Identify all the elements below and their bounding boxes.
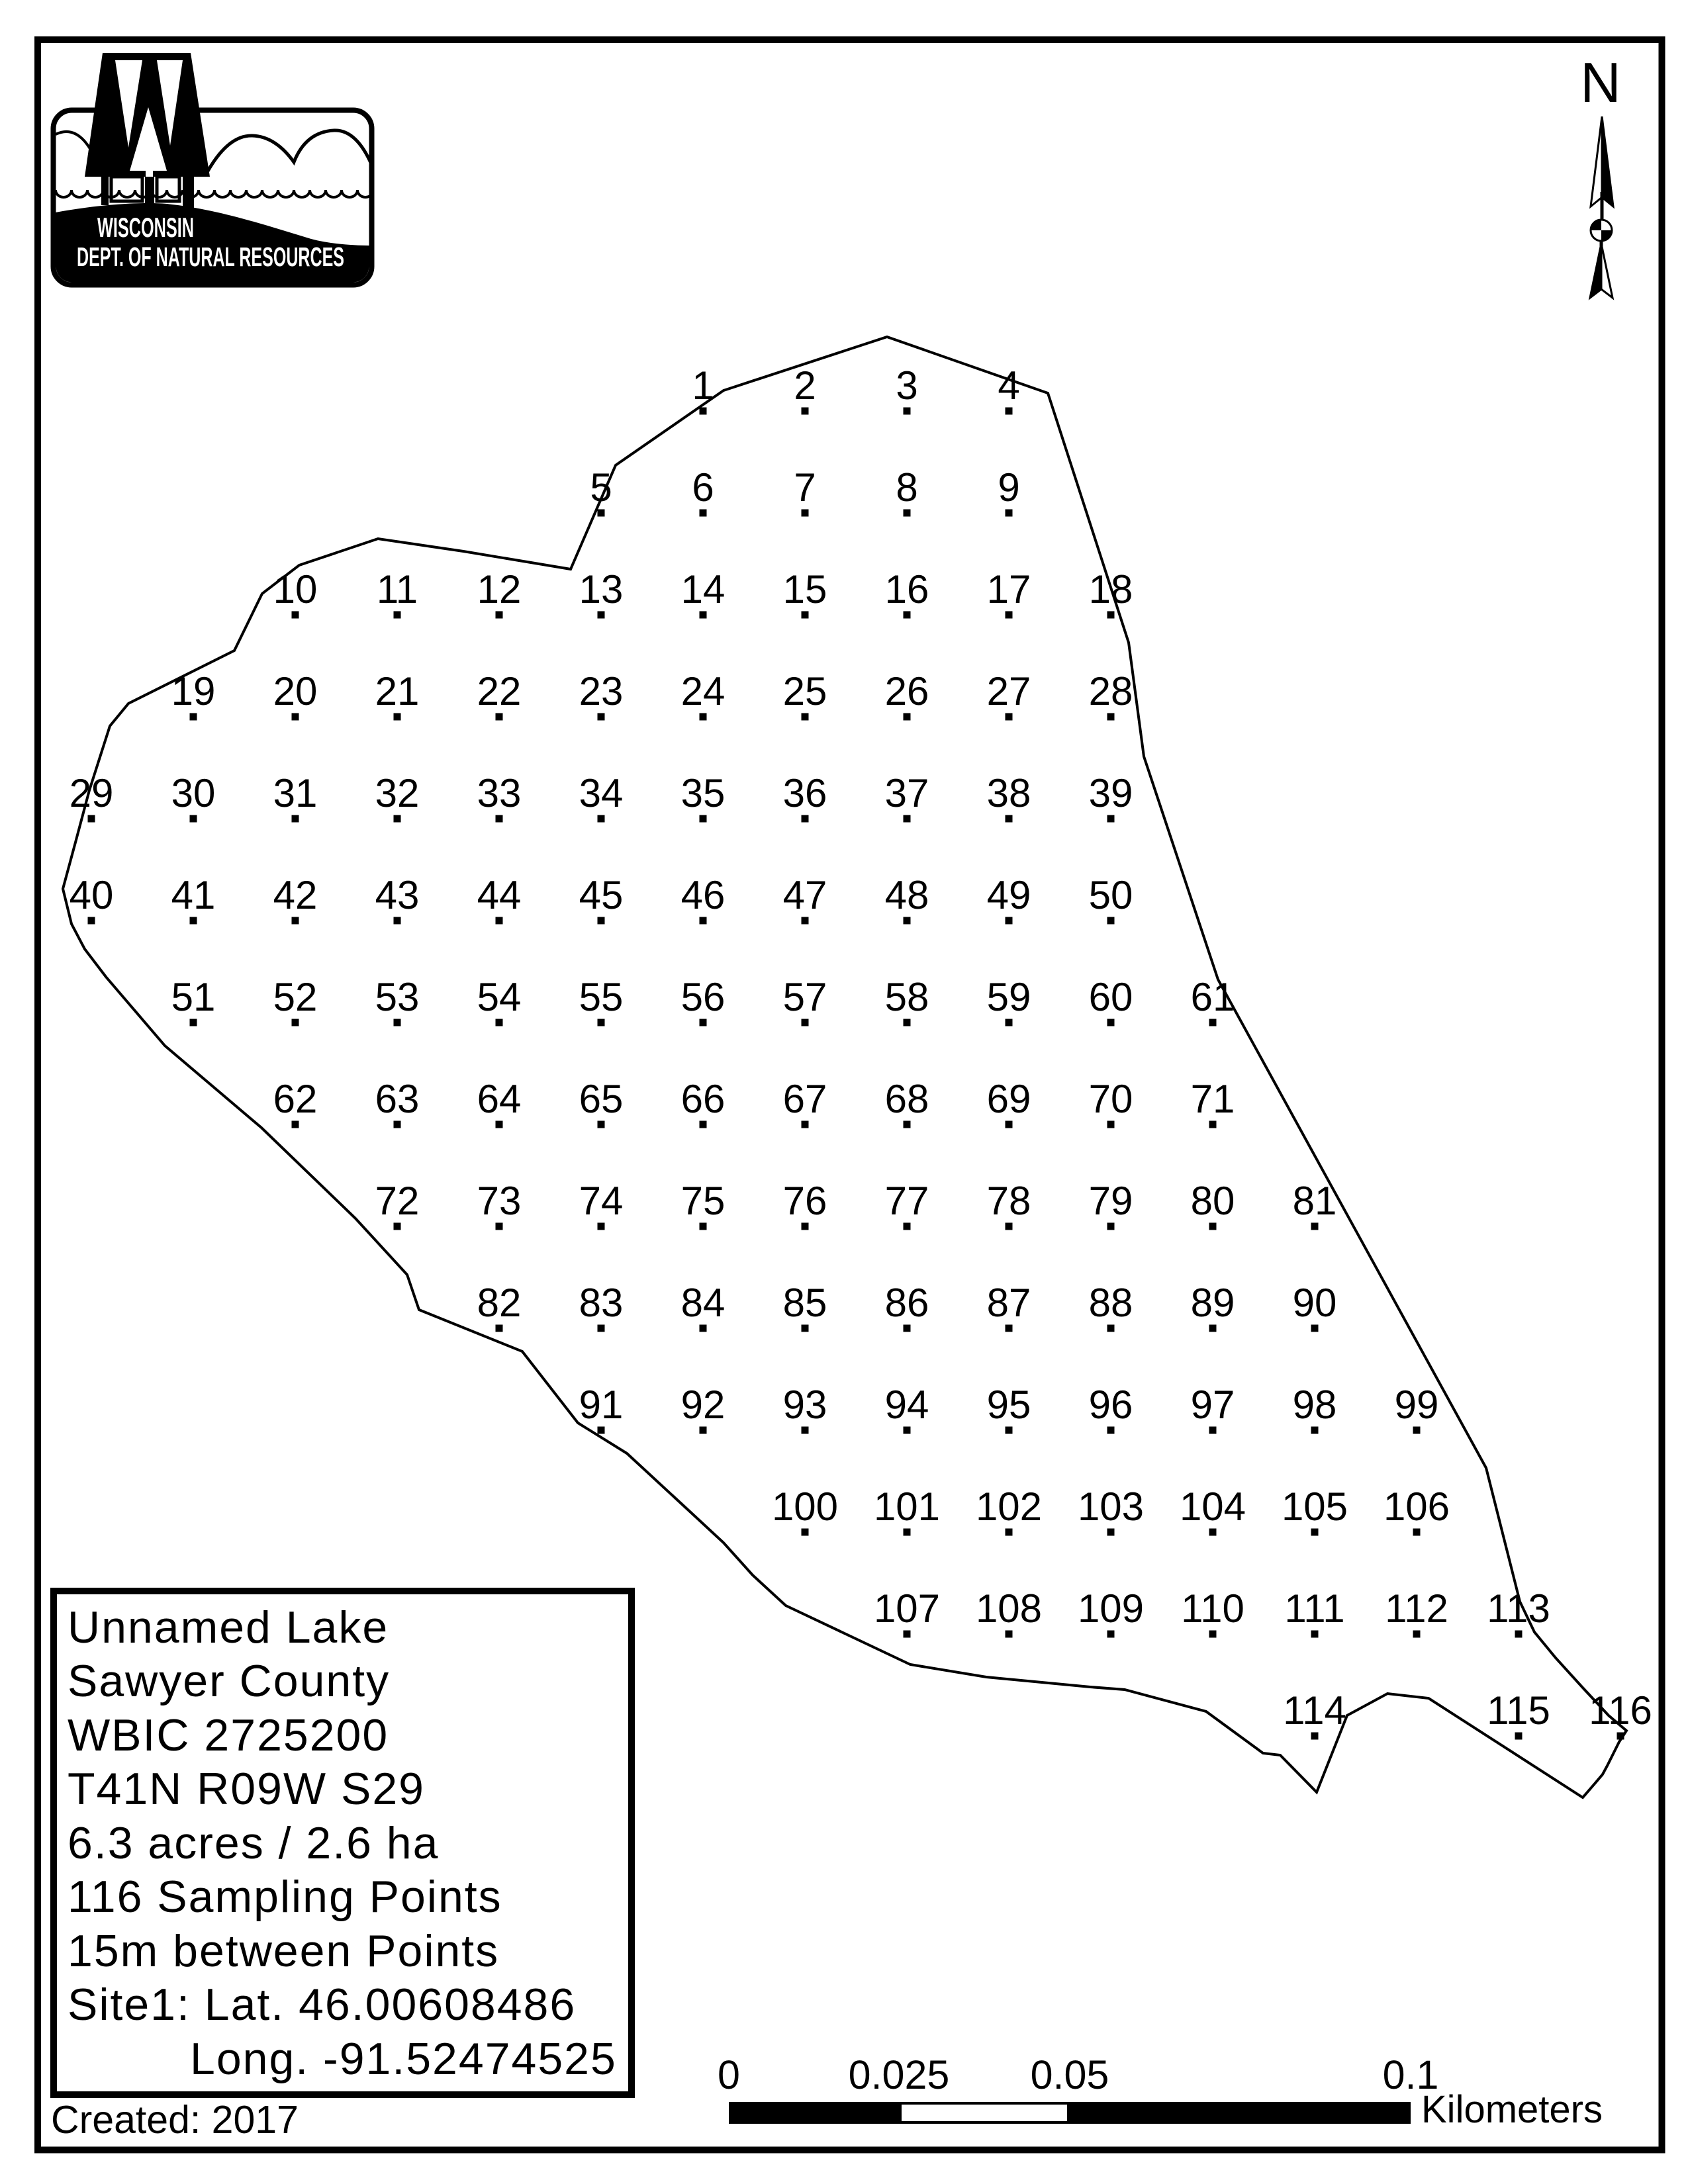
svg-text:65: 65 xyxy=(579,1077,624,1121)
svg-text:114: 114 xyxy=(1283,1688,1346,1733)
svg-text:92: 92 xyxy=(681,1383,726,1427)
svg-text:40: 40 xyxy=(70,873,114,917)
svg-text:83: 83 xyxy=(579,1281,624,1325)
svg-text:Unnamed Lake: Unnamed Lake xyxy=(68,1602,389,1653)
svg-text:94: 94 xyxy=(885,1383,929,1427)
svg-text:54: 54 xyxy=(477,975,522,1019)
svg-text:51: 51 xyxy=(171,975,216,1019)
svg-text:43: 43 xyxy=(375,873,420,917)
svg-text:15m between Points: 15m between Points xyxy=(68,1926,499,1976)
svg-text:101: 101 xyxy=(874,1484,940,1529)
svg-text:19: 19 xyxy=(171,669,216,713)
svg-text:82: 82 xyxy=(477,1281,522,1325)
svg-text:61: 61 xyxy=(1191,975,1235,1019)
svg-text:14: 14 xyxy=(681,567,726,612)
svg-text:27: 27 xyxy=(987,669,1031,713)
svg-text:33: 33 xyxy=(477,771,522,815)
svg-text:46: 46 xyxy=(681,873,726,917)
svg-text:7: 7 xyxy=(794,465,816,510)
svg-text:30: 30 xyxy=(171,771,216,815)
svg-text:Created: 2017: Created: 2017 xyxy=(51,2098,299,2142)
svg-text:39: 39 xyxy=(1089,771,1133,815)
svg-text:22: 22 xyxy=(477,669,522,713)
svg-text:75: 75 xyxy=(681,1179,726,1223)
svg-text:89: 89 xyxy=(1191,1281,1235,1325)
svg-text:71: 71 xyxy=(1191,1077,1235,1121)
svg-text:0.025: 0.025 xyxy=(849,2052,950,2097)
svg-text:78: 78 xyxy=(987,1179,1031,1223)
svg-text:67: 67 xyxy=(783,1077,827,1121)
svg-text:52: 52 xyxy=(273,975,318,1019)
svg-text:16: 16 xyxy=(885,567,929,612)
svg-text:4: 4 xyxy=(998,363,1019,408)
svg-text:N: N xyxy=(1580,52,1620,114)
svg-text:9: 9 xyxy=(998,465,1019,510)
svg-text:50: 50 xyxy=(1089,873,1133,917)
svg-text:106: 106 xyxy=(1383,1484,1450,1529)
svg-text:3: 3 xyxy=(896,363,917,408)
svg-text:34: 34 xyxy=(579,771,624,815)
svg-text:0: 0 xyxy=(718,2052,740,2097)
svg-text:112: 112 xyxy=(1385,1586,1448,1631)
svg-text:41: 41 xyxy=(171,873,216,917)
svg-text:DEPT. OF NATURAL RESOURCES: DEPT. OF NATURAL RESOURCES xyxy=(77,242,344,272)
svg-text:104: 104 xyxy=(1180,1484,1246,1529)
svg-text:12: 12 xyxy=(477,567,522,612)
svg-text:79: 79 xyxy=(1089,1179,1133,1223)
svg-text:62: 62 xyxy=(273,1077,318,1121)
svg-text:42: 42 xyxy=(273,873,318,917)
svg-text:0.05: 0.05 xyxy=(1031,2052,1109,2097)
svg-text:57: 57 xyxy=(783,975,827,1019)
svg-text:74: 74 xyxy=(579,1179,624,1223)
svg-text:T41N R09W S29: T41N R09W S29 xyxy=(68,1764,425,1814)
svg-text:Long. -91.52474525: Long. -91.52474525 xyxy=(190,2034,617,2084)
svg-text:26: 26 xyxy=(885,669,929,713)
svg-text:56: 56 xyxy=(681,975,726,1019)
svg-text:84: 84 xyxy=(681,1281,726,1325)
svg-text:37: 37 xyxy=(885,771,929,815)
svg-text:63: 63 xyxy=(375,1077,420,1121)
svg-text:2: 2 xyxy=(794,363,816,408)
svg-text:44: 44 xyxy=(477,873,522,917)
svg-text:Kilometers: Kilometers xyxy=(1421,2088,1603,2131)
svg-text:35: 35 xyxy=(681,771,726,815)
svg-text:87: 87 xyxy=(987,1281,1031,1325)
svg-text:105: 105 xyxy=(1282,1484,1348,1529)
svg-text:24: 24 xyxy=(681,669,726,713)
svg-text:Site1: Lat. 46.00608486: Site1: Lat. 46.00608486 xyxy=(68,1979,576,2030)
svg-text:100: 100 xyxy=(772,1484,838,1529)
svg-text:88: 88 xyxy=(1089,1281,1133,1325)
svg-text:66: 66 xyxy=(681,1077,726,1121)
svg-text:1: 1 xyxy=(692,363,714,408)
svg-text:6: 6 xyxy=(692,465,714,510)
svg-text:69: 69 xyxy=(987,1077,1031,1121)
svg-text:72: 72 xyxy=(375,1179,420,1223)
svg-text:48: 48 xyxy=(885,873,929,917)
svg-text:18: 18 xyxy=(1089,567,1133,612)
svg-text:36: 36 xyxy=(783,771,827,815)
svg-text:98: 98 xyxy=(1293,1383,1337,1427)
svg-text:103: 103 xyxy=(1078,1484,1144,1529)
svg-text:47: 47 xyxy=(783,873,827,917)
svg-text:WBIC 2725200: WBIC 2725200 xyxy=(68,1710,389,1760)
svg-text:28: 28 xyxy=(1089,669,1133,713)
svg-text:70: 70 xyxy=(1089,1077,1133,1121)
svg-text:108: 108 xyxy=(976,1586,1042,1631)
svg-text:73: 73 xyxy=(477,1179,522,1223)
svg-text:59: 59 xyxy=(987,975,1031,1019)
svg-text:45: 45 xyxy=(579,873,624,917)
svg-text:60: 60 xyxy=(1089,975,1133,1019)
svg-text:90: 90 xyxy=(1293,1281,1337,1325)
svg-text:97: 97 xyxy=(1191,1383,1235,1427)
svg-text:49: 49 xyxy=(987,873,1031,917)
svg-text:115: 115 xyxy=(1487,1688,1550,1733)
svg-text:113: 113 xyxy=(1487,1586,1550,1631)
svg-text:93: 93 xyxy=(783,1383,827,1427)
svg-text:Sawyer County: Sawyer County xyxy=(68,1656,390,1706)
svg-text:11: 11 xyxy=(377,567,418,612)
svg-text:38: 38 xyxy=(987,771,1031,815)
svg-text:5: 5 xyxy=(590,465,612,510)
svg-text:111: 111 xyxy=(1284,1586,1344,1631)
svg-text:64: 64 xyxy=(477,1077,522,1121)
svg-text:13: 13 xyxy=(579,567,624,612)
svg-text:116: 116 xyxy=(1589,1688,1652,1733)
svg-text:10: 10 xyxy=(273,567,318,612)
svg-text:29: 29 xyxy=(70,771,114,815)
svg-text:WISCONSIN: WISCONSIN xyxy=(97,212,194,243)
svg-text:32: 32 xyxy=(375,771,420,815)
svg-text:17: 17 xyxy=(987,567,1031,612)
svg-text:21: 21 xyxy=(375,669,420,713)
svg-text:107: 107 xyxy=(874,1586,940,1631)
svg-text:110: 110 xyxy=(1181,1586,1244,1631)
svg-text:20: 20 xyxy=(273,669,318,713)
svg-text:53: 53 xyxy=(375,975,420,1019)
svg-text:96: 96 xyxy=(1089,1383,1133,1427)
svg-text:15: 15 xyxy=(783,567,827,612)
svg-text:91: 91 xyxy=(579,1383,624,1427)
svg-text:99: 99 xyxy=(1395,1383,1439,1427)
svg-text:23: 23 xyxy=(579,669,624,713)
svg-text:86: 86 xyxy=(885,1281,929,1325)
svg-text:109: 109 xyxy=(1078,1586,1144,1631)
svg-text:8: 8 xyxy=(896,465,917,510)
svg-text:80: 80 xyxy=(1191,1179,1235,1223)
svg-text:116 Sampling Points: 116 Sampling Points xyxy=(68,1872,502,1922)
svg-text:25: 25 xyxy=(783,669,827,713)
svg-text:58: 58 xyxy=(885,975,929,1019)
svg-text:68: 68 xyxy=(885,1077,929,1121)
svg-text:81: 81 xyxy=(1293,1179,1337,1223)
svg-text:77: 77 xyxy=(885,1179,929,1223)
svg-text:31: 31 xyxy=(273,771,318,815)
svg-text:95: 95 xyxy=(987,1383,1031,1427)
svg-text:85: 85 xyxy=(783,1281,827,1325)
svg-text:6.3 acres / 2.6 ha: 6.3 acres / 2.6 ha xyxy=(68,1818,439,1868)
svg-text:55: 55 xyxy=(579,975,624,1019)
svg-text:102: 102 xyxy=(976,1484,1042,1529)
svg-text:76: 76 xyxy=(783,1179,827,1223)
